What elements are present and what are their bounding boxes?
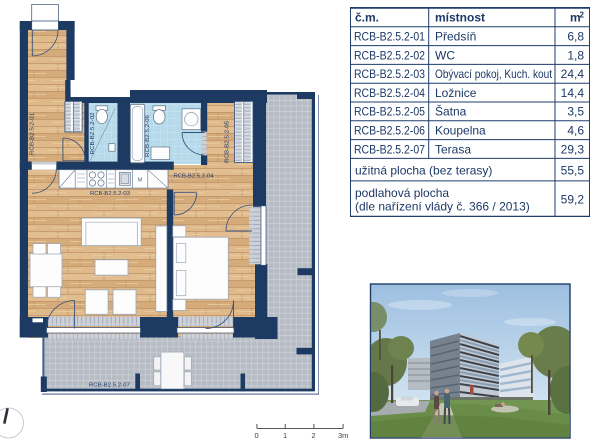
svg-text:WC: WC xyxy=(435,48,455,62)
svg-text:0: 0 xyxy=(255,431,259,440)
svg-text:Ložnice: Ložnice xyxy=(435,86,477,100)
svg-text:místnost: místnost xyxy=(435,11,485,25)
svg-text:55,5: 55,5 xyxy=(561,164,585,178)
svg-text:RCB-B2.5.2-04: RCB-B2.5.2-04 xyxy=(354,86,425,100)
svg-text:2: 2 xyxy=(580,11,585,20)
svg-text:RCB-B2.5.2-05: RCB-B2.5.2-05 xyxy=(225,121,231,163)
svg-text:užitná plocha (bez terasy): užitná plocha (bez terasy) xyxy=(355,164,492,178)
svg-text:Předsíň: Předsíň xyxy=(435,30,476,44)
svg-text:podlahová plocha: podlahová plocha xyxy=(355,186,449,200)
svg-text:RCB-B2.5.2-02: RCB-B2.5.2-02 xyxy=(90,113,96,155)
svg-text:RCB-B2.5.2-07: RCB-B2.5.2-07 xyxy=(89,383,130,389)
svg-text:(dle nařízení vlády č. 366 / 2: (dle nařízení vlády č. 366 / 2013) xyxy=(355,200,530,214)
svg-text:č.m.: č.m. xyxy=(355,11,379,25)
svg-text:Šatna: Šatna xyxy=(435,104,467,119)
svg-text:RCB-B2.5.2-06: RCB-B2.5.2-06 xyxy=(145,115,151,157)
svg-text:RCB-B2.5.2-06: RCB-B2.5.2-06 xyxy=(354,124,425,138)
svg-text:29,3: 29,3 xyxy=(561,142,585,156)
svg-text:24,4: 24,4 xyxy=(561,67,585,81)
svg-text:4,6: 4,6 xyxy=(567,124,584,138)
svg-text:RCB-B2.5.2-02: RCB-B2.5.2-02 xyxy=(354,48,425,62)
svg-text:RCB-B2.5.2-01: RCB-B2.5.2-01 xyxy=(354,30,425,44)
svg-text:RCB-B2.5.2-05: RCB-B2.5.2-05 xyxy=(354,105,425,119)
svg-text:RCB-B2.5.2-04: RCB-B2.5.2-04 xyxy=(174,174,215,180)
svg-text:6,8: 6,8 xyxy=(567,30,584,44)
svg-text:Terasa: Terasa xyxy=(435,142,471,156)
svg-text:RCB-B2.5.2-03: RCB-B2.5.2-03 xyxy=(90,191,130,197)
svg-text:3m: 3m xyxy=(338,431,348,440)
svg-text:RCB-B2.5.2-01: RCB-B2.5.2-01 xyxy=(30,113,36,155)
svg-text:59,2: 59,2 xyxy=(561,193,585,207)
svg-text:1: 1 xyxy=(283,431,287,440)
svg-text:3,5: 3,5 xyxy=(567,105,584,119)
svg-text:M: M xyxy=(138,178,143,184)
svg-text:1,8: 1,8 xyxy=(567,48,584,62)
svg-text:Obývací pokoj, Kuch. kout: Obývací pokoj, Kuch. kout xyxy=(435,67,553,81)
svg-text:RCB-B2.5.2-03: RCB-B2.5.2-03 xyxy=(354,67,425,81)
svg-text:14,4: 14,4 xyxy=(561,86,585,100)
svg-text:Koupelna: Koupelna xyxy=(435,124,486,138)
svg-text:2: 2 xyxy=(312,431,316,440)
svg-text:RCB-B2.5.2-07: RCB-B2.5.2-07 xyxy=(354,142,425,156)
